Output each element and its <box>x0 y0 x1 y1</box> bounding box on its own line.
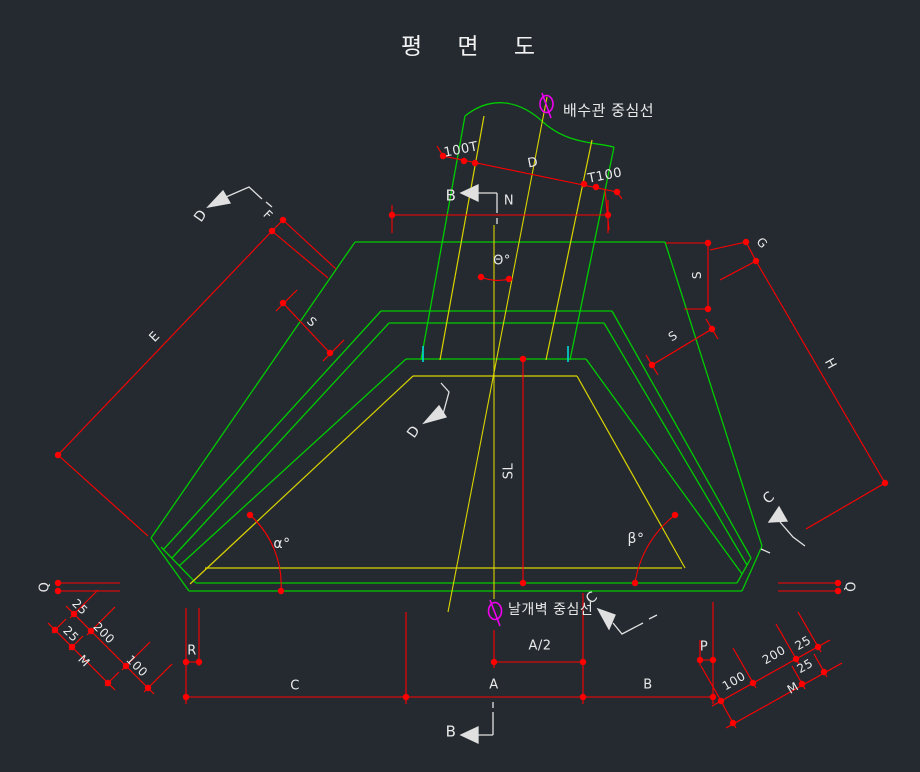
section-B-top-label: B <box>446 189 457 204</box>
section-C-right-arrow <box>761 507 805 553</box>
centerline-symbol-wall <box>489 600 502 626</box>
section-B-bottom-label: B <box>446 725 457 740</box>
dim-SL: SL <box>503 463 516 480</box>
dim-alpha: α° <box>273 537 290 551</box>
dim-S-right: S <box>691 271 703 279</box>
drawing-title: 평 면 도 <box>401 27 549 61</box>
centerline-symbol-pipe <box>540 93 553 118</box>
pipe-centerline-label: 배수관 중심선 <box>563 104 654 119</box>
dim-beta: β° <box>628 532 645 546</box>
section-D-topleft-arrow <box>208 187 272 207</box>
wall-centerline-label: 날개벽 중심선 <box>508 603 593 617</box>
dim-theta: Θ° <box>493 255 511 268</box>
dim-Q-left: Q <box>39 582 52 593</box>
dim-B: B <box>643 679 652 692</box>
dim-C: C <box>290 680 300 693</box>
dim-A2: A/2 <box>528 640 551 653</box>
dim-Q-right: Q <box>843 582 856 593</box>
dim-A: A <box>489 679 498 692</box>
wing-wall-structure <box>151 242 762 591</box>
section-D-mid-arrow <box>424 383 449 423</box>
section-C-bottom-arrow <box>598 609 657 634</box>
dimension-lines <box>48 146 885 728</box>
section-B-top-arrow <box>461 185 497 224</box>
cad-drawing-area: 평 면 도 배수관 중심선날개벽 중심선100TDT100BNΘ°DFESGSS… <box>0 0 920 772</box>
section-B-bottom-arrow <box>461 702 493 743</box>
dim-R: R <box>187 645 197 658</box>
dim-N: N <box>504 195 514 208</box>
hidden-lines-yellow <box>190 116 685 584</box>
drain-pipe <box>421 103 614 360</box>
dim-P: P <box>700 641 708 654</box>
dim-pipe-D: D <box>527 156 540 171</box>
